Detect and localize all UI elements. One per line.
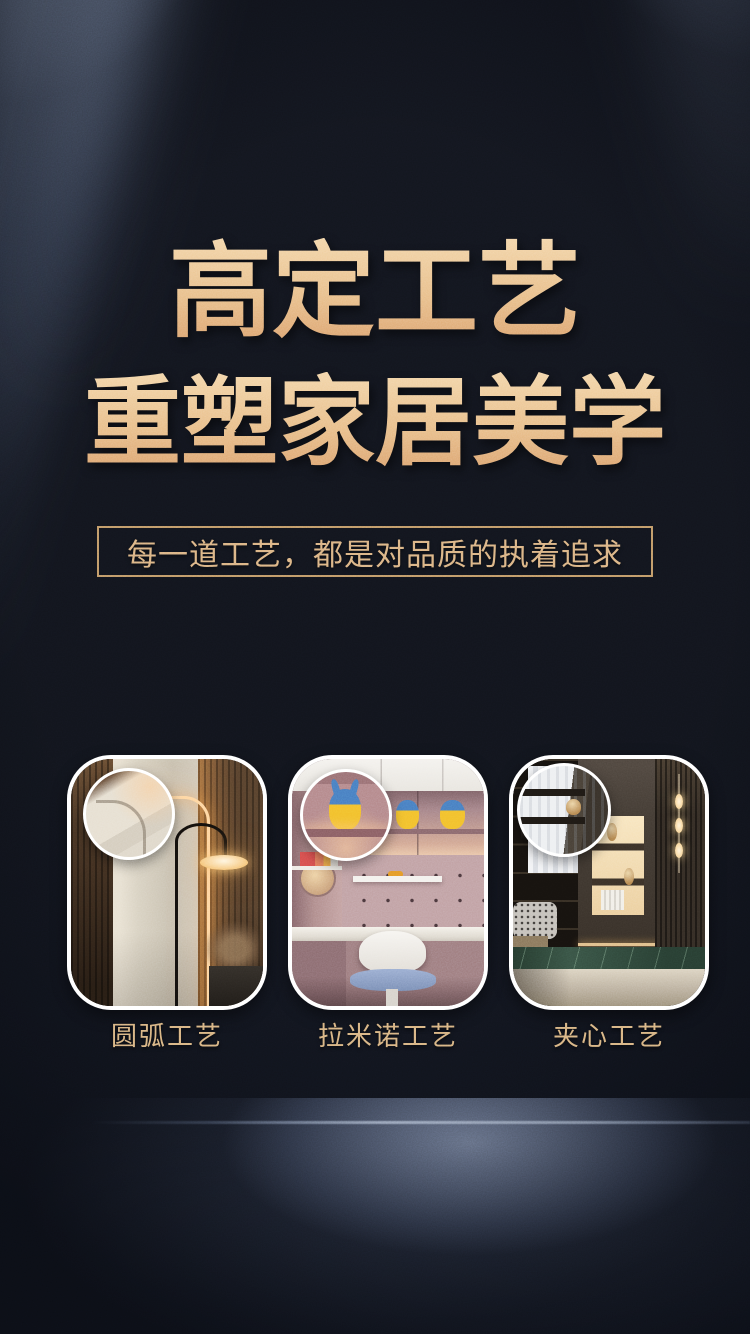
title-line-1: 高定工艺 (0, 238, 750, 346)
gold-decor-closeup (566, 799, 582, 815)
side-cabinet (209, 966, 263, 1006)
white-books (601, 890, 624, 910)
pegboard-wall (342, 855, 484, 927)
pikachu-figurine (440, 800, 465, 830)
toy-car (388, 871, 403, 876)
dried-plant (205, 922, 259, 971)
arc-floor-lamp-pole (175, 841, 178, 1006)
gold-decor-object (607, 823, 617, 840)
craft-card-rounded-corner (67, 755, 267, 1010)
lamp-ring-light (200, 855, 248, 870)
promo-poster: 高定工艺 重塑家居美学 每一道工艺，都是对品质的执着追求 (0, 0, 750, 1334)
zoom-circle-icon (300, 769, 392, 861)
craft-card-sandwich (509, 755, 709, 1010)
zoom-circle-icon (83, 768, 175, 860)
subtitle-box: 每一道工艺，都是对品质的执着追求 (97, 526, 653, 577)
title-line-2: 重塑家居美学 (0, 372, 750, 474)
subtitle-text: 每一道工艺，都是对品质的执着追求 (127, 530, 623, 574)
stone-floor (513, 969, 705, 1006)
pikachu-figurine-closeup (329, 789, 362, 830)
pikachu-figurine (396, 800, 419, 830)
patterned-sofa (513, 902, 557, 939)
caption-lamello: 拉米诺工艺 (288, 1016, 488, 1053)
captions-row: 圆弧工艺 拉米诺工艺 夹心工艺 (67, 1016, 709, 1053)
craft-cards-row (67, 755, 709, 1010)
pendant-bulb (675, 794, 683, 809)
chair-back (359, 931, 426, 973)
kids-study-photo (292, 759, 484, 1006)
zoom-circle-icon (517, 763, 611, 857)
green-marble-base (513, 947, 705, 969)
caption-sandwich: 夹心工艺 (509, 1016, 709, 1053)
wall-shelf (353, 876, 441, 882)
chair-post (386, 989, 398, 1006)
luxury-living-photo (513, 759, 705, 1006)
bedroom-photo (71, 759, 263, 1006)
left-shelf (292, 866, 342, 870)
gold-decor-object (624, 868, 634, 885)
coffee-table (513, 936, 548, 947)
background (0, 0, 750, 1334)
caption-rounded-corner: 圆弧工艺 (67, 1016, 267, 1053)
craft-card-lamello (288, 755, 488, 1010)
